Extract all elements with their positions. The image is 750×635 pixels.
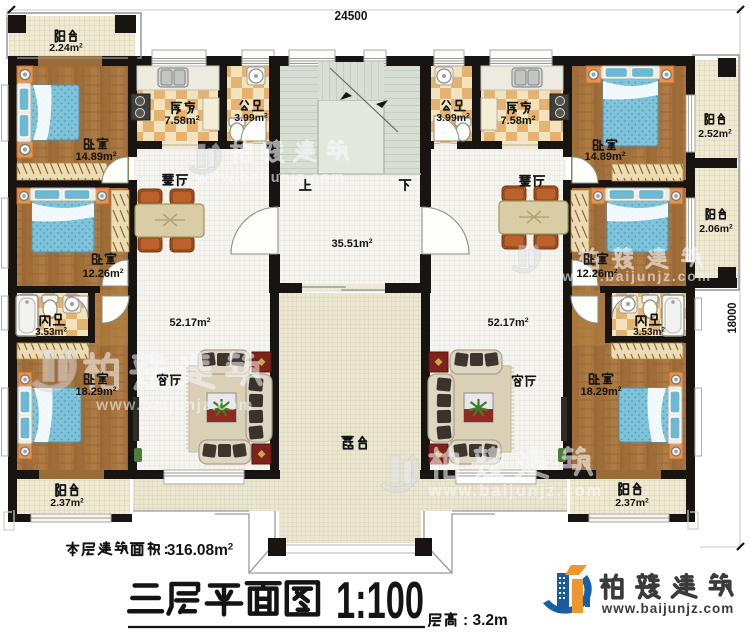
svg-text:www.baijunjz.com: www.baijunjz.com [95, 397, 254, 414]
svg-text:1:100: 1:100 [336, 572, 424, 630]
svg-text:14.89m2: 14.89m2 [75, 151, 116, 163]
svg-text:12.26m2: 12.26m2 [576, 268, 617, 280]
svg-text:316.08m2: 316.08m2 [167, 542, 234, 559]
svg-text:52.17m2: 52.17m2 [487, 317, 528, 329]
svg-text:3.99m2: 3.99m2 [436, 112, 470, 124]
svg-text:52.17m2: 52.17m2 [169, 317, 210, 329]
svg-text:2.37m2: 2.37m2 [50, 497, 84, 509]
svg-text:2.52m2: 2.52m2 [698, 128, 732, 140]
svg-text:2.24m2: 2.24m2 [49, 42, 83, 54]
svg-text:7.58m2: 7.58m2 [501, 115, 536, 127]
svg-text:2.06m2: 2.06m2 [699, 223, 733, 235]
svg-text:www.baijunjz.com: www.baijunjz.com [195, 170, 345, 186]
svg-text:www.baijunjz.com: www.baijunjz.com [601, 601, 735, 616]
svg-text:3.53m2: 3.53m2 [633, 327, 665, 339]
svg-text:14.89m2: 14.89m2 [584, 151, 625, 163]
svg-text:35.51m2: 35.51m2 [331, 238, 372, 250]
svg-text:3.99m2: 3.99m2 [234, 112, 268, 124]
svg-text:3.53m2: 3.53m2 [35, 327, 67, 339]
svg-text:2.37m2: 2.37m2 [615, 497, 649, 509]
svg-text:: 3.2m: : 3.2m [463, 612, 508, 629]
svg-text:7.58m2: 7.58m2 [165, 115, 200, 127]
svg-text:18.29m2: 18.29m2 [580, 386, 621, 398]
svg-text:12.26m2: 12.26m2 [82, 268, 123, 280]
svg-text:www.baijunjz.com: www.baijunjz.com [428, 482, 603, 500]
svg-text:18000: 18000 [725, 302, 739, 333]
svg-text:24500: 24500 [335, 8, 368, 23]
svg-text:18.29m2: 18.29m2 [75, 386, 116, 398]
